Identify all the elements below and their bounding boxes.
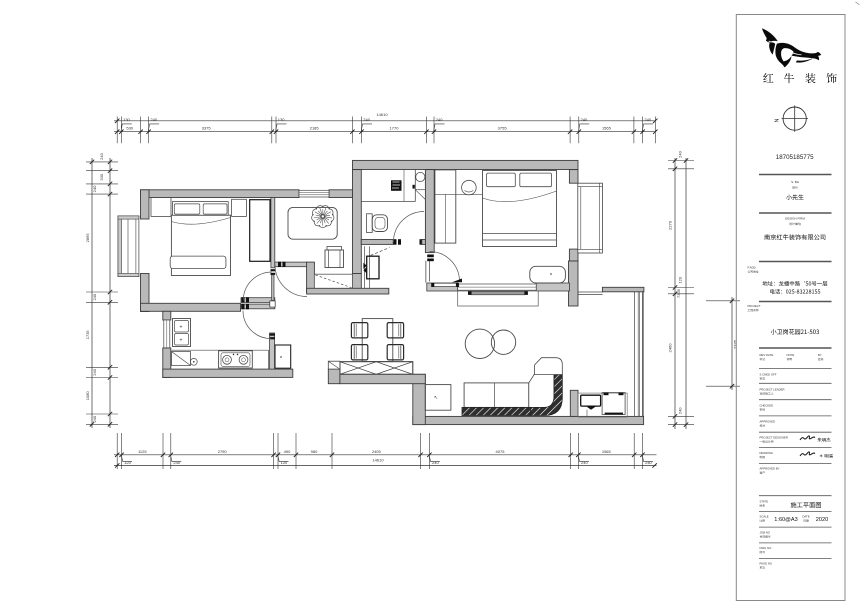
svg-text:1080: 1080 <box>85 391 90 401</box>
svg-text:DATE: DATE <box>802 515 809 519</box>
svg-text:REV DATE: REV DATE <box>760 353 774 357</box>
svg-text:240: 240 <box>678 407 683 414</box>
svg-text:CHECKED: CHECKED <box>760 404 774 408</box>
svg-text:+: + <box>180 324 183 330</box>
svg-text:3755: 3755 <box>498 125 508 130</box>
svg-text:JOB NO: JOB NO <box>760 531 771 535</box>
svg-text:1770: 1770 <box>390 125 400 130</box>
svg-text:240: 240 <box>436 117 443 122</box>
svg-text:240: 240 <box>92 293 97 300</box>
svg-text:14610: 14610 <box>376 112 388 117</box>
svg-text:240: 240 <box>645 460 652 465</box>
svg-text:2790: 2790 <box>218 449 228 454</box>
svg-text:2270: 2270 <box>668 220 673 230</box>
svg-text:S. BH: S. BH <box>791 180 799 184</box>
svg-text:240: 240 <box>644 117 651 122</box>
svg-text:240: 240 <box>150 117 157 122</box>
svg-text:240: 240 <box>678 150 683 157</box>
svg-text:1735: 1735 <box>85 330 90 340</box>
svg-text:PAGE NO: PAGE NO <box>760 562 773 566</box>
svg-text:530: 530 <box>126 125 133 130</box>
svg-text:240: 240 <box>173 460 180 465</box>
svg-text:240: 240 <box>92 415 97 422</box>
svg-text:2020: 2020 <box>816 517 828 523</box>
svg-text:240: 240 <box>92 368 97 375</box>
svg-text:120: 120 <box>124 460 131 465</box>
svg-text:130: 130 <box>278 117 285 122</box>
svg-text:DWG NO: DWG NO <box>760 546 773 550</box>
svg-text:120: 120 <box>678 276 683 283</box>
svg-text:1125: 1125 <box>138 449 147 454</box>
svg-text:PROJECT: PROJECT <box>748 304 761 308</box>
svg-text:3375: 3375 <box>202 125 212 130</box>
svg-text:980: 980 <box>311 449 318 454</box>
svg-text:S CHED OFF: S CHED OFF <box>760 373 777 377</box>
svg-text:N: N <box>775 118 781 122</box>
svg-text:2185: 2185 <box>310 125 320 130</box>
svg-text:18705185775: 18705185775 <box>776 154 814 161</box>
svg-text:2405: 2405 <box>372 449 382 454</box>
svg-text:BY: BY <box>818 353 822 357</box>
svg-text:SCALE: SCALE <box>760 515 769 519</box>
svg-text:NOTE: NOTE <box>787 353 795 357</box>
svg-text:240: 240 <box>99 152 104 159</box>
svg-text:490: 490 <box>284 449 291 454</box>
svg-text:APPROVED BY: APPROVED BY <box>760 467 780 471</box>
svg-text:14610: 14610 <box>372 457 384 462</box>
svg-text:240: 240 <box>432 460 439 465</box>
svg-text:1565: 1565 <box>602 449 612 454</box>
svg-text:PROJECT LEADER: PROJECT LEADER <box>760 388 785 392</box>
svg-text:2460: 2460 <box>668 343 673 353</box>
svg-text:240: 240 <box>581 117 588 122</box>
svg-text:2865: 2865 <box>85 233 90 243</box>
svg-text:4075: 4075 <box>496 449 506 454</box>
svg-text:240: 240 <box>92 185 97 192</box>
svg-text:240: 240 <box>581 460 588 465</box>
svg-text:APPROVED: APPROVED <box>760 420 776 424</box>
svg-text:1:60@A3: 1:60@A3 <box>774 517 797 523</box>
svg-text:DESIGN FIRM: DESIGN FIRM <box>785 217 805 221</box>
svg-text:330: 330 <box>99 173 104 180</box>
svg-text:↖: ↖ <box>434 395 438 401</box>
svg-text:7335: 7335 <box>676 288 681 298</box>
svg-text:PROJECT DESIGNER: PROJECT DESIGNER <box>760 436 788 440</box>
svg-text:STATE: STATE <box>760 500 769 504</box>
svg-text:DRAWING: DRAWING <box>760 451 773 455</box>
svg-text:+: + <box>180 338 183 344</box>
svg-text:120: 120 <box>281 460 288 465</box>
svg-text:240: 240 <box>363 117 370 122</box>
svg-text:130: 130 <box>123 117 130 122</box>
svg-text:P.ADD: P.ADD <box>748 266 756 270</box>
svg-text:1565: 1565 <box>602 125 612 130</box>
